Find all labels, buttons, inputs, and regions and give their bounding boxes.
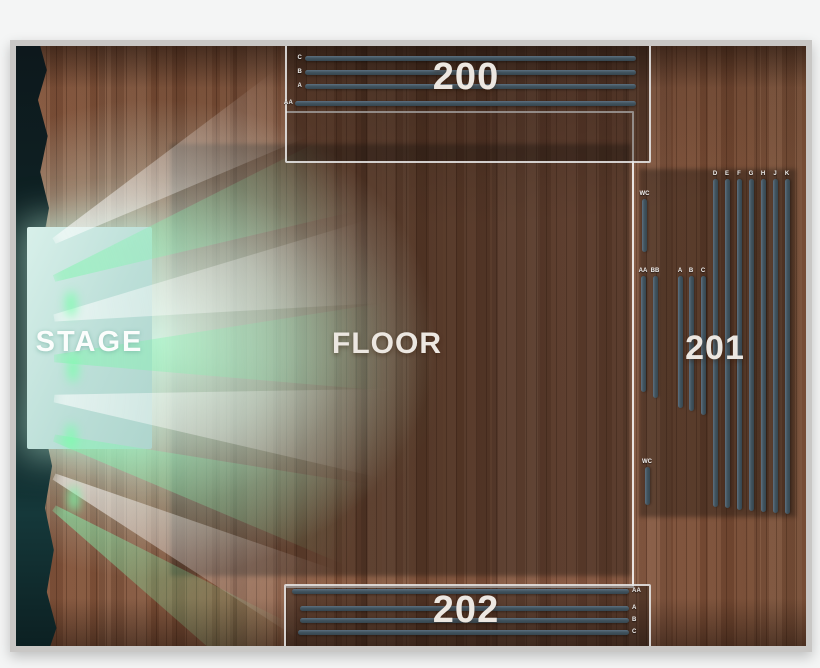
row-label: D <box>713 171 717 178</box>
floor-label: FLOOR <box>237 327 537 361</box>
row-label: H <box>761 171 765 178</box>
seat-row-201-wc-top[interactable] <box>642 199 647 252</box>
section-201-label: 201 <box>640 329 790 368</box>
row-label: F <box>737 171 741 178</box>
row-label: WC <box>640 191 650 198</box>
stage-lamp <box>68 356 78 382</box>
page-background: STAGE C B A AA 200 FLOOR WC AA BB A B <box>0 0 820 668</box>
stage-lamp <box>69 486 79 512</box>
row-label: G <box>749 171 754 178</box>
row-label: K <box>785 171 789 178</box>
row-label: AA <box>639 268 648 275</box>
section-200-label: 200 <box>286 56 646 99</box>
stage-label: STAGE <box>27 326 152 359</box>
row-label: BB <box>651 268 660 275</box>
row-label: WC <box>642 459 652 466</box>
row-label: E <box>725 171 729 178</box>
venue-seat-map: STAGE C B A AA 200 FLOOR WC AA BB A B <box>10 40 812 652</box>
stage-lamp <box>66 291 76 317</box>
row-label: A <box>678 268 682 275</box>
row-label: J <box>773 171 776 178</box>
stage-lamp <box>66 424 76 450</box>
section-202-label: 202 <box>286 589 646 632</box>
row-label: C <box>701 268 705 275</box>
seat-row-200-aa[interactable] <box>295 101 636 106</box>
row-label: AA <box>279 100 293 107</box>
row-label: B <box>689 268 693 275</box>
seat-row-201-wc-bottom[interactable] <box>645 467 650 505</box>
